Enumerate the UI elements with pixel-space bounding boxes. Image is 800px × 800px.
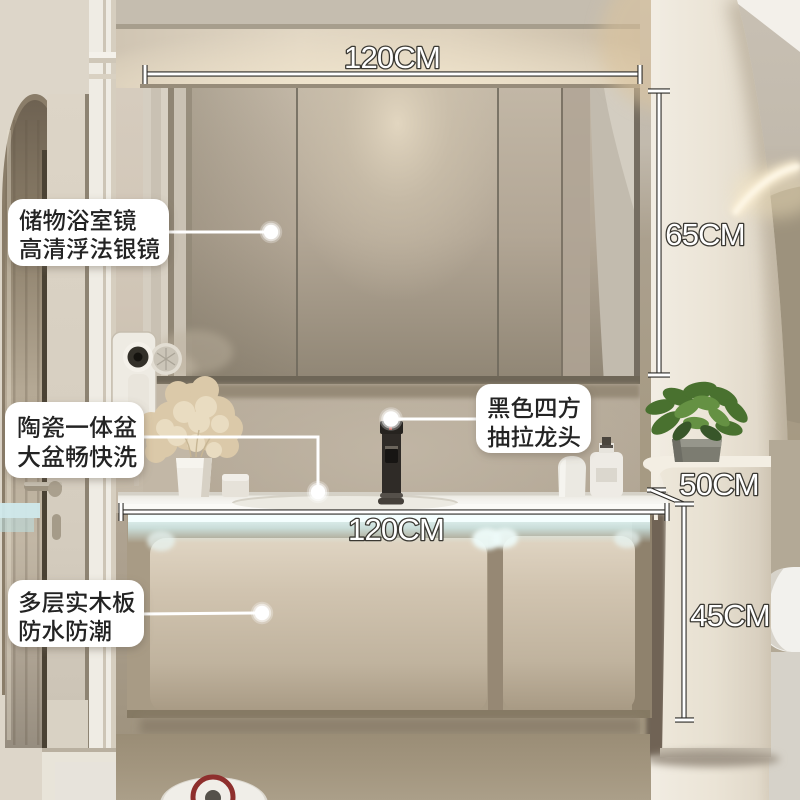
- svg-text:65CM: 65CM: [665, 217, 745, 252]
- svg-text:120CM: 120CM: [348, 512, 444, 547]
- svg-text:45CM: 45CM: [690, 598, 770, 633]
- svg-text:50CM: 50CM: [679, 467, 759, 502]
- svg-text:120CM: 120CM: [344, 40, 440, 75]
